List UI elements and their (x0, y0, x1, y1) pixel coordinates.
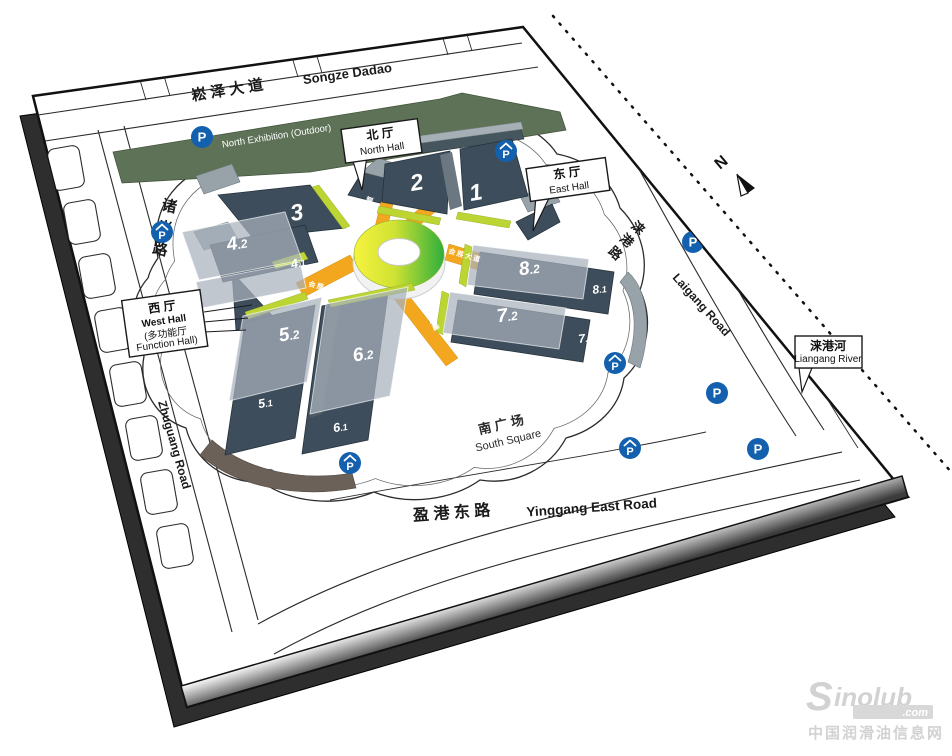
covered-parking-icon: P (151, 221, 173, 243)
covered-parking-icon: P (339, 452, 361, 474)
covered-parking-icon: P (619, 437, 641, 459)
compass: N (712, 153, 755, 196)
covered-parking-icon: P (604, 352, 626, 374)
watermark: S inolub .com 中国润滑油信息网 (806, 675, 944, 742)
svg-text:P: P (198, 130, 207, 145)
venue-map-canvas: 北展场 (室外) North Exhibition (Outdoor) (0, 0, 952, 756)
svg-text:P: P (626, 446, 633, 458)
watermark-tld: .com (902, 707, 928, 719)
parking-icon: P (706, 382, 728, 404)
parking-icon: P (747, 438, 769, 460)
svg-text:P: P (611, 361, 618, 373)
svg-text:P: P (713, 386, 722, 401)
parking-icon: P (191, 126, 213, 148)
svg-text:P: P (158, 230, 165, 242)
svg-text:P: P (502, 149, 509, 161)
covered-parking-icon: P (495, 140, 517, 162)
venue-map-svg: 北展场 (室外) North Exhibition (Outdoor) (0, 0, 952, 756)
svg-text:P: P (754, 442, 763, 457)
compass-n-label: N (712, 153, 732, 173)
svg-text:P: P (346, 461, 353, 473)
liangang-river-callout: 涞港河 Liangang River (794, 336, 862, 392)
watermark-tagline: 中国润滑油信息网 (808, 724, 944, 742)
watermark-brand-initial: S (806, 675, 833, 719)
river-label-zh: 涞港河 (810, 338, 846, 353)
river-label-en: Liangang River (794, 354, 862, 365)
